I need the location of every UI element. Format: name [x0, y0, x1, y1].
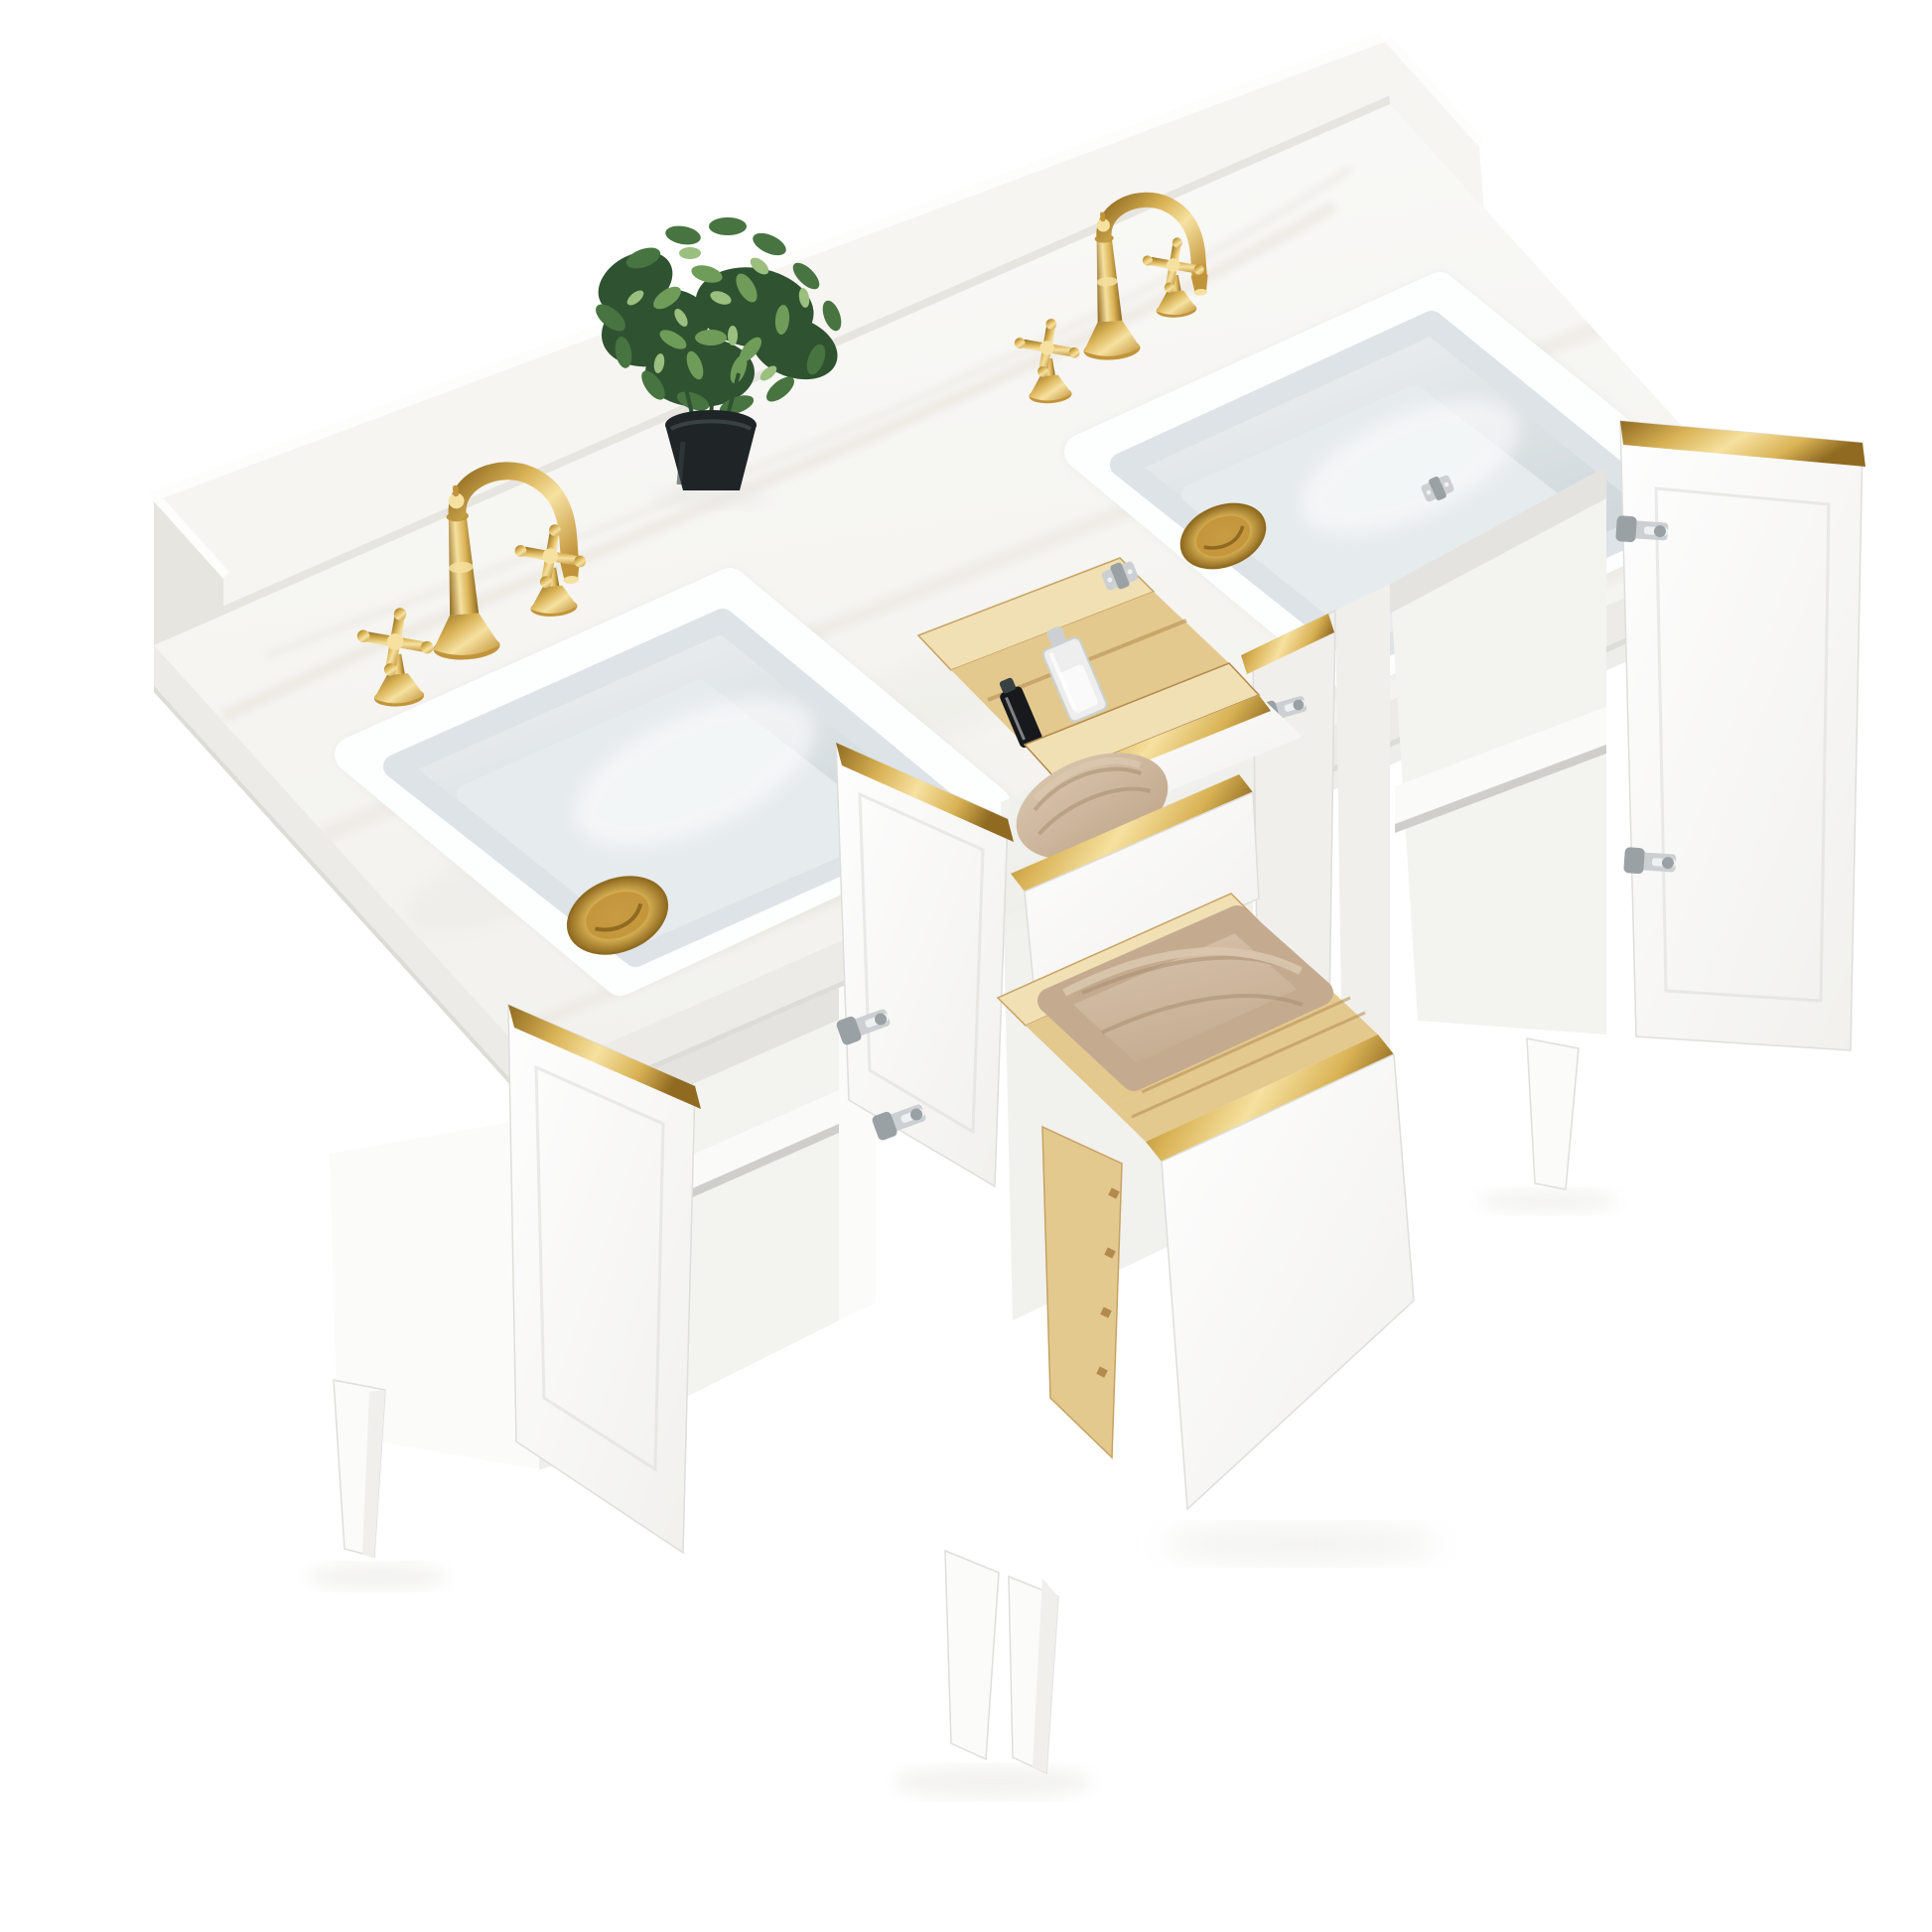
- floor-shadow: [308, 1564, 447, 1589]
- plant-leaf: [695, 330, 727, 345]
- vanity-illustration: [0, 0, 1932, 1932]
- plant-leaf: [679, 247, 701, 259]
- product-photo: [0, 0, 1932, 1932]
- floor-shadow: [1162, 1524, 1440, 1564]
- floor-shadow: [1479, 1189, 1618, 1213]
- plant-leaf: [728, 326, 738, 345]
- floor-shadow: [894, 1766, 1092, 1798]
- plant-leaf: [709, 217, 747, 235]
